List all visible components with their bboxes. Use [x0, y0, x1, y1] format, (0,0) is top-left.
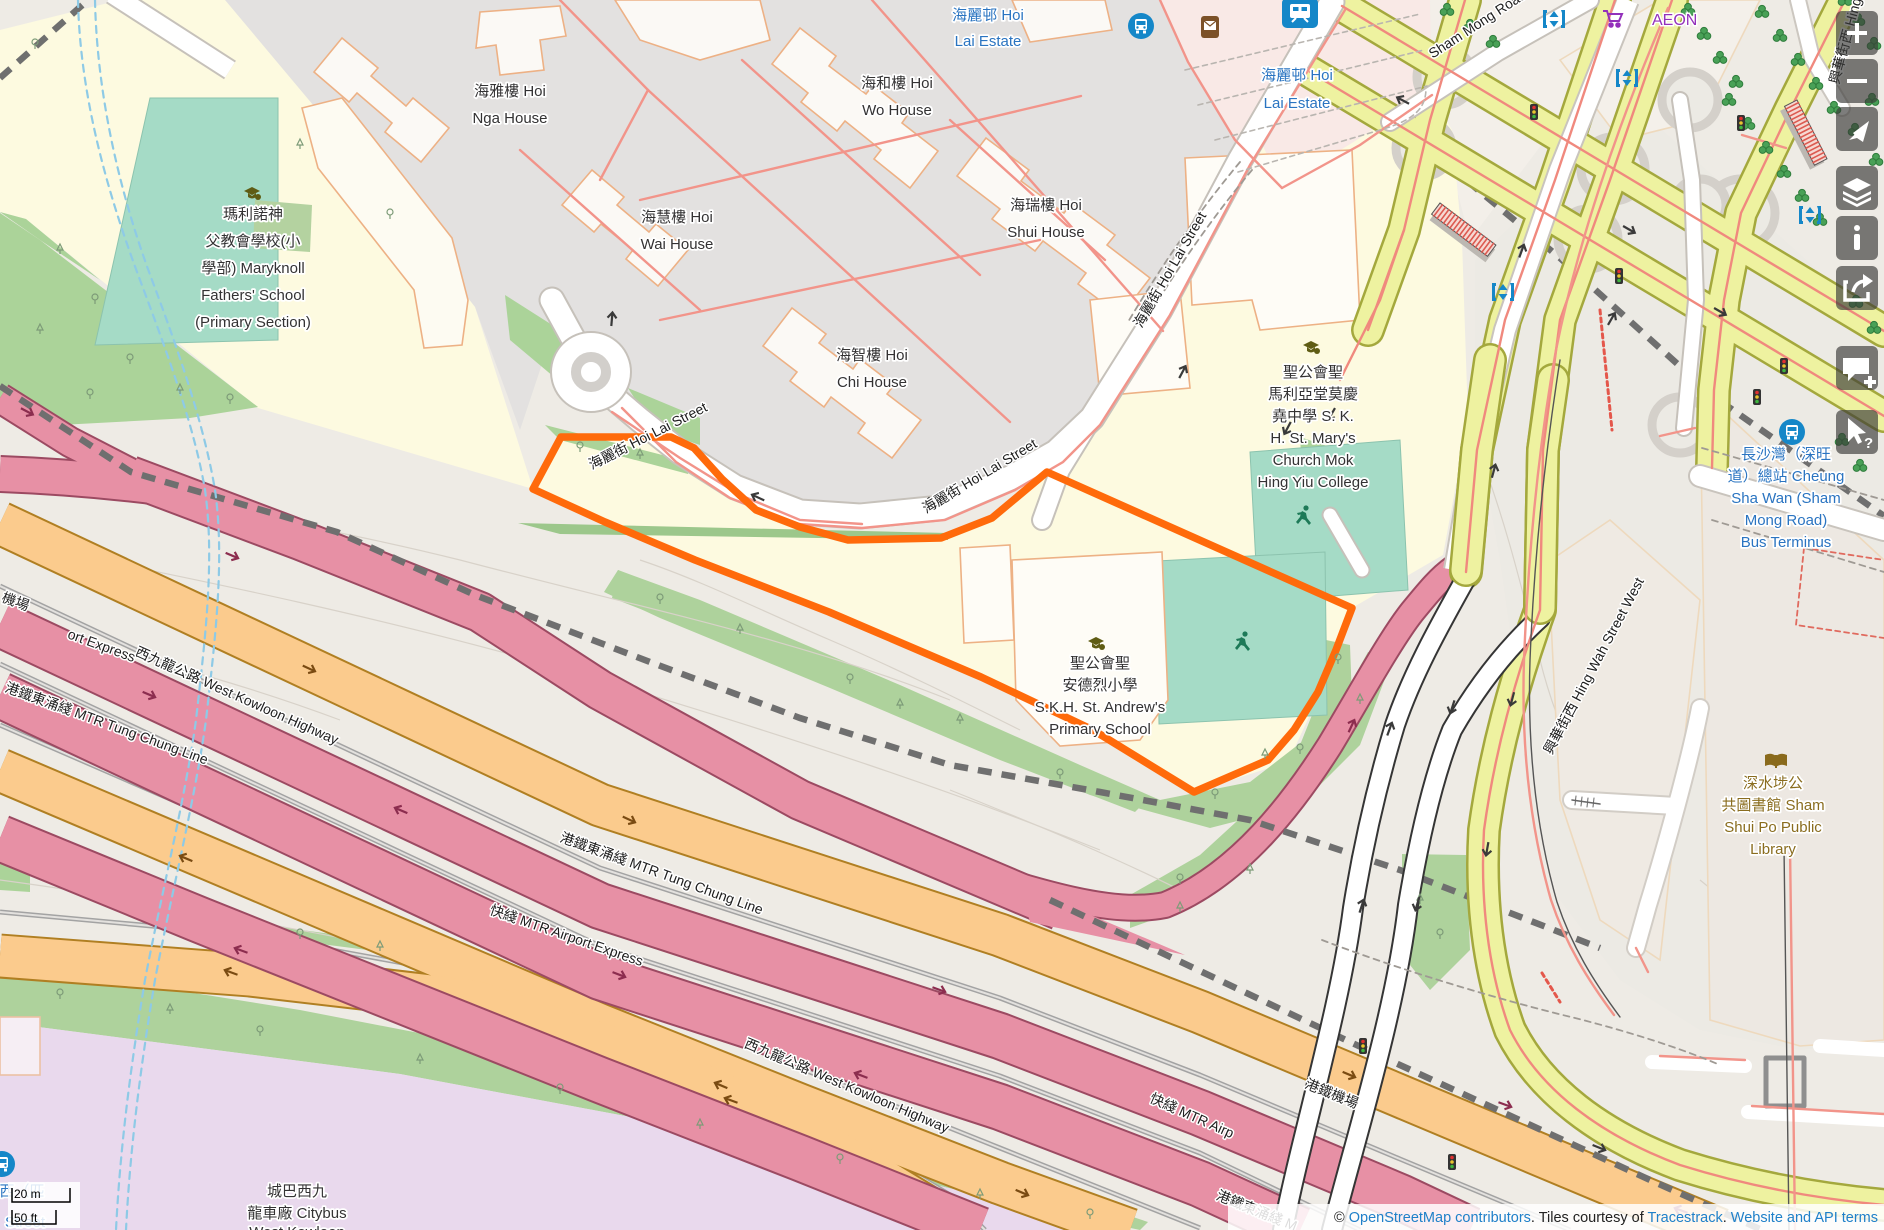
svg-text:H. St. Mary's: H. St. Mary's [1270, 430, 1355, 447]
svg-text:Bus Terminus: Bus Terminus [1741, 534, 1832, 551]
svg-text:Hing Yiu College: Hing Yiu College [1258, 474, 1369, 491]
svg-text:Fathers' School: Fathers' School [201, 287, 305, 304]
svg-text:海瑞樓 Hoi: 海瑞樓 Hoi [1010, 197, 1082, 214]
svg-text:Mong Road): Mong Road) [1745, 512, 1828, 529]
svg-text:海麗邨 Hoi: 海麗邨 Hoi [952, 7, 1024, 24]
svg-text:Library: Library [1750, 841, 1796, 858]
svg-text:瑪利諾神: 瑪利諾神 [223, 206, 283, 223]
svg-text:聖公會聖: 聖公會聖 [1283, 364, 1343, 381]
svg-text:Primary School: Primary School [1049, 721, 1151, 738]
svg-text:共圖書館 Sham: 共圖書館 Sham [1721, 797, 1824, 814]
svg-text:長沙灣（深旺: 長沙灣（深旺 [1741, 446, 1831, 463]
svg-text:(Primary Section): (Primary Section) [195, 314, 311, 331]
svg-text:海慧樓 Hoi: 海慧樓 Hoi [641, 209, 713, 226]
svg-text:50 ft: 50 ft [14, 1211, 38, 1225]
svg-text:20 m: 20 m [14, 1187, 41, 1201]
svg-text:堯中學 S. K.: 堯中學 S. K. [1272, 407, 1354, 425]
svg-text:S.K.H. St. Andrew's: S.K.H. St. Andrew's [1035, 699, 1165, 716]
svg-text:聖公會聖: 聖公會聖 [1070, 655, 1130, 672]
svg-text:West Kowloon: West Kowloon [249, 1224, 345, 1230]
svg-text:學部) Maryknoll: 學部) Maryknoll [201, 259, 304, 277]
svg-text:AEON: AEON [1652, 12, 1697, 29]
svg-text:城巴西九: 城巴西九 [267, 1183, 327, 1200]
svg-text:© OpenStreetMap contributors.: © OpenStreetMap contributors. Tiles cour… [1334, 1210, 1878, 1226]
svg-text:Lai Estate: Lai Estate [955, 33, 1022, 50]
svg-text:深水埗公: 深水埗公 [1743, 775, 1803, 792]
svg-text:龍車廠 Citybus: 龍車廠 Citybus [247, 1204, 346, 1222]
svg-text:父教會學校(小: 父教會學校(小 [206, 232, 301, 250]
svg-text:安德烈小學: 安德烈小學 [1062, 676, 1137, 694]
svg-text:Wo House: Wo House [862, 102, 932, 119]
svg-text:海和樓 Hoi: 海和樓 Hoi [861, 75, 933, 92]
svg-text:Shui House: Shui House [1007, 224, 1085, 241]
svg-text:Church Mok: Church Mok [1273, 452, 1354, 469]
svg-text:Sha Wan (Sham: Sha Wan (Sham [1731, 490, 1841, 507]
svg-text:Shui Po Public: Shui Po Public [1724, 819, 1822, 836]
svg-text:?: ? [1864, 435, 1873, 452]
svg-text:道）總站 Cheung: 道）總站 Cheung [1728, 467, 1845, 485]
svg-text:Nga House: Nga House [472, 110, 547, 127]
svg-text:Chi House: Chi House [837, 374, 907, 391]
svg-text:Wai House: Wai House [641, 236, 714, 253]
svg-text:海麗邨 Hoi: 海麗邨 Hoi [1261, 67, 1333, 84]
svg-text:海雅樓 Hoi: 海雅樓 Hoi [474, 83, 546, 100]
svg-text:馬利亞堂莫慶: 馬利亞堂莫慶 [1268, 386, 1358, 403]
svg-text:Lai Estate: Lai Estate [1264, 95, 1331, 112]
svg-text:海智樓 Hoi: 海智樓 Hoi [836, 346, 908, 364]
